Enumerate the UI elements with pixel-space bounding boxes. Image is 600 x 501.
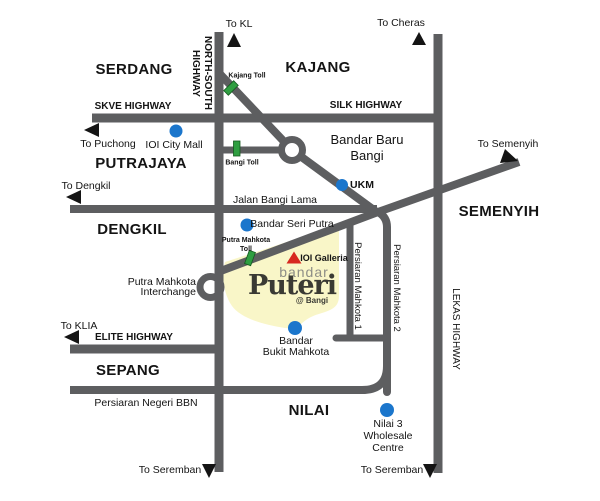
ukm-dot: [336, 179, 348, 191]
direction-to-klia: To KLIA: [61, 320, 98, 332]
road-label-elite: ELITE HIGHWAY: [95, 332, 173, 344]
logo-puteri-text: Puteri: [248, 280, 336, 292]
region-semenyih: SEMENYIH: [459, 206, 540, 218]
ioi-city-mall-dot: [170, 125, 183, 138]
bandar-baru-bangi-line2: Bangi: [331, 148, 404, 164]
region-kajang: KAJANG: [285, 62, 350, 74]
to-semenyih-arrow-icon: [500, 149, 518, 163]
poi-label-bandar-seri-putra: Bandar Seri Putra: [250, 218, 333, 230]
to-klia-left-arrow-icon: [64, 330, 79, 344]
location-map: To KL To Cheras SERDANG KAJANG NORTH-SOU…: [0, 0, 600, 501]
nilai3-line2: Wholesale: [363, 430, 412, 442]
road-label-north-south-highway: NORTH-SOUTH HIGHWAY: [189, 36, 213, 110]
poi-label-ukm: UKM: [350, 179, 374, 191]
to-cheras-up-arrow-icon: [412, 32, 426, 45]
road-label-persiaran-mahkota-1: Persiaran Mahkota 1: [351, 242, 363, 330]
road-label-persiaran-mahkota-2: Persiaran Mahkota 2: [390, 244, 402, 332]
putra-mahkota-toll-line1: Putra Mahkota: [222, 236, 270, 245]
poi-label-putra-mahkota-interchange: Putra Mahkota Interchange: [128, 277, 196, 297]
bangi-toll-marker: [234, 141, 241, 156]
to-dengkil-left-arrow-icon: [66, 190, 81, 204]
nilai-3-dot: [380, 403, 394, 417]
direction-to-dengkil: To Dengkil: [61, 180, 110, 192]
north-south-line2: HIGHWAY: [189, 36, 201, 110]
road-label-jalan-bangi-lama: Jalan Bangi Lama: [233, 194, 317, 206]
poi-label-nilai-3-wholesale-centre: Nilai 3 Wholesale Centre: [363, 418, 412, 454]
direction-to-kl: To KL: [226, 18, 253, 30]
toll-label-bangi: Bangi Toll: [225, 159, 258, 168]
nilai3-line1: Nilai 3: [363, 418, 412, 430]
logo-at-bangi-text: @ Bangi: [296, 295, 328, 307]
nilai3-line3: Centre: [363, 442, 412, 454]
region-dengkil: DENGKIL: [97, 224, 167, 236]
bukit-mahkota-line2: Bukit Mahkota: [263, 347, 330, 358]
direction-to-seremban-east: To Seremban: [361, 464, 423, 476]
interchange-line2: Interchange: [128, 287, 196, 297]
to-kl-up-arrow-icon: [227, 33, 241, 47]
direction-to-puchong: To Puchong: [80, 138, 135, 150]
direction-to-cheras: To Cheras: [377, 17, 425, 29]
direction-to-semenyih: To Semenyih: [478, 138, 539, 150]
poi-label-ioi-galleria: IOI Galleria: [300, 252, 348, 264]
bandar-baru-bangi-line1: Bandar Baru: [331, 132, 404, 148]
bandar-bukit-mahkota-dot: [288, 321, 302, 335]
region-serdang: SERDANG: [95, 64, 172, 76]
region-nilai: NILAI: [289, 405, 330, 417]
poi-label-bandar-bukit-mahkota: Bandar Bukit Mahkota: [263, 336, 330, 358]
road-persiaran-mahkota-2: [378, 212, 387, 392]
region-putrajaya: PUTRAJAYA: [95, 158, 187, 170]
road-label-silk: SILK HIGHWAY: [330, 100, 402, 112]
bangi-roundabout: [282, 140, 303, 161]
north-south-line1: NORTH-SOUTH: [201, 36, 213, 110]
road-label-skve: SKVE HIGHWAY: [95, 101, 172, 113]
poi-label-bandar-baru-bangi: Bandar Baru Bangi: [331, 132, 404, 164]
road-label-lekas-highway: LEKAS HIGHWAY: [449, 288, 461, 370]
putra-mahkota-toll-line2: Toll: [222, 245, 270, 254]
to-puchong-left-arrow-icon: [84, 123, 99, 137]
toll-label-putra-mahkota: Putra Mahkota Toll: [222, 236, 270, 254]
road-label-persiaran-negeri-bbn: Persiaran Negeri BBN: [94, 397, 197, 409]
poi-label-ioi-city-mall: IOI City Mall: [145, 139, 202, 151]
direction-to-seremban-west: To Seremban: [139, 464, 201, 476]
to-seremban-west-down-arrow-icon: [202, 464, 216, 478]
toll-label-kajang: Kajang Toll: [228, 72, 265, 81]
region-sepang: SEPANG: [96, 365, 160, 377]
